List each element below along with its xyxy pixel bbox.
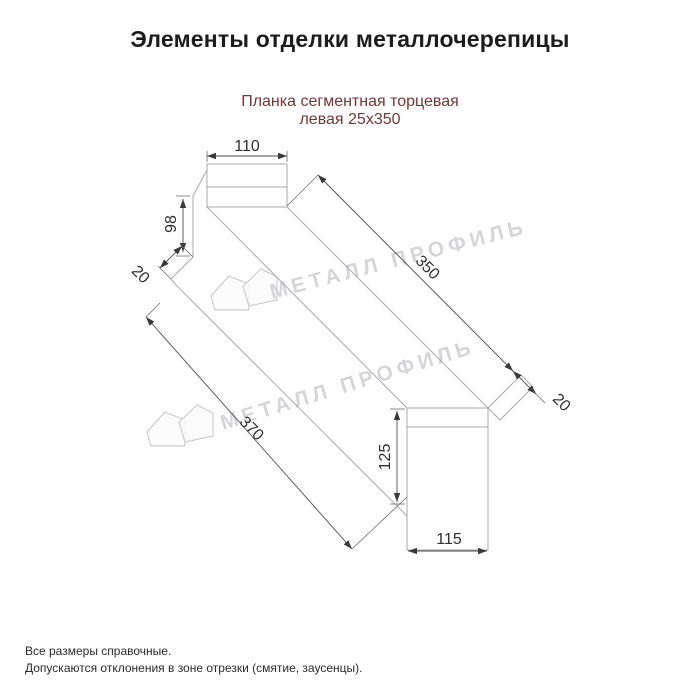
dim-left-height-label: 98 [163,215,180,233]
dim-right-width-label: 115 [436,531,462,548]
dim-right-height-label: 125 [377,444,394,471]
dimension-labels: 110 98 20 350 370 20 125 115 [128,138,574,548]
footnote-2: Допускаются отклонения в зоне отрезки (с… [25,660,362,677]
watermark-1: МЕТАЛЛ ПРОФИЛЬ [211,215,530,310]
watermark-text: МЕТАЛЛ ПРОФИЛЬ [267,215,529,304]
footnotes: Все размеры справочные. Допускаются откл… [25,643,362,677]
dim-top-width-label: 110 [234,138,260,155]
metall-profil-logo-icon [211,269,277,310]
dim-right-flange-label: 20 [549,391,574,416]
page: Элементы отделки металлочерепицы Планка … [0,0,700,700]
dim-left-flange-label: 20 [128,263,153,288]
metall-profil-logo-icon [147,405,213,446]
object-lines [171,164,533,550]
footnote-1: Все размеры справочные. [25,643,362,660]
technical-drawing: МЕТАЛЛ ПРОФИЛЬ МЕТАЛЛ ПРОФИЛЬ [0,0,700,700]
